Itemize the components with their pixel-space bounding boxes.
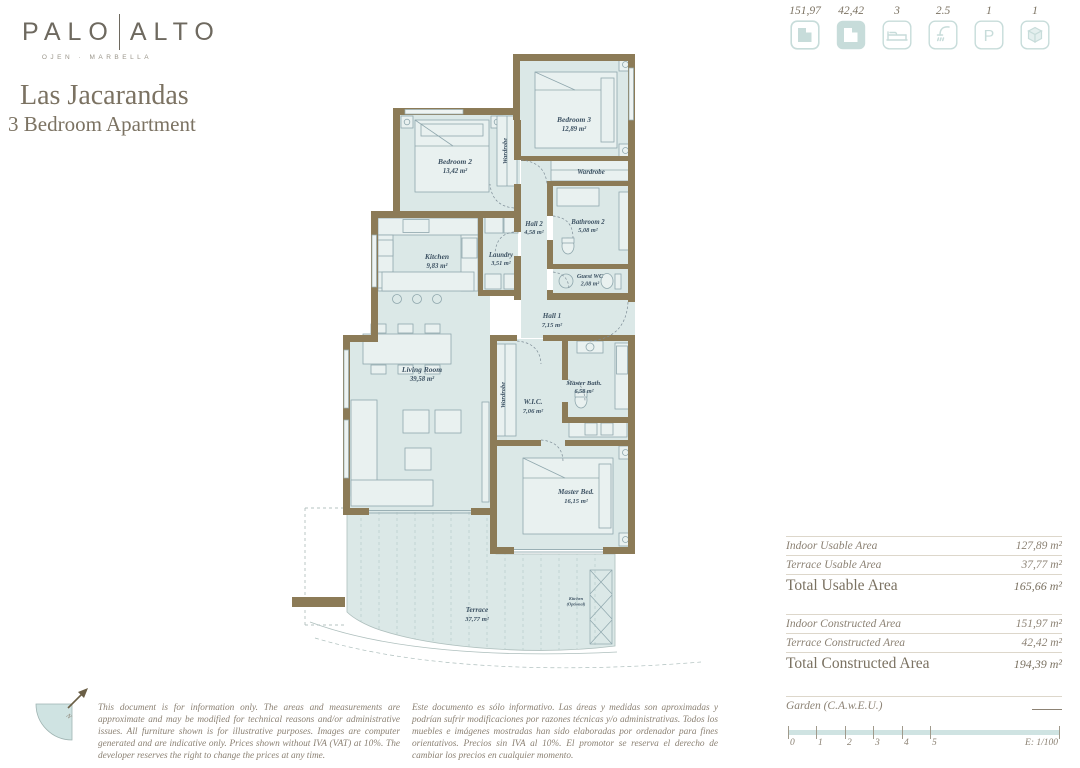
svg-text:4,58 m²: 4,58 m²	[523, 229, 543, 236]
floorplan-page: PALO ALTO OJEN · MARBELLA Las Jacarandas…	[0, 0, 1080, 768]
brand-name-left: PALO	[22, 18, 115, 47]
room-label-wardrobe-bedroom3: Wardrobe	[577, 169, 604, 176]
svg-text:39,58 m²: 39,58 m²	[409, 376, 435, 383]
scale-tick	[788, 726, 789, 739]
svg-text:W.I.C.: W.I.C.	[524, 398, 543, 406]
usable-area-group: Indoor Usable Area 127,89 m² Terrace Usa…	[786, 536, 1062, 598]
row-label: Total Constructed Area	[786, 655, 930, 673]
constructed-area-group: Indoor Constructed Area 151,97 m² Terrac…	[786, 614, 1062, 676]
bedroom2-bed	[401, 116, 503, 192]
svg-text:Laundry: Laundry	[488, 252, 514, 259]
scale-tick-label: 0	[790, 738, 795, 748]
svg-text:P: P	[984, 28, 995, 45]
area-summary-table: Indoor Usable Area 127,89 m² Terrace Usa…	[786, 536, 1062, 715]
disclaimer-spanish: Este documento es sólo informativo. Las …	[412, 702, 718, 762]
bedrooms-icon	[882, 20, 912, 50]
page-title: Las Jacarandas	[20, 80, 189, 112]
room-label-optional-kitchen: Kitchen (Optional)	[567, 596, 586, 607]
svg-text:2,08 m²: 2,08 m²	[580, 282, 600, 288]
row-value: 127,89 m²	[1016, 539, 1062, 553]
table-row: Terrace Constructed Area 42,42 m²	[786, 633, 1062, 652]
brand-tagline: OJEN · MARBELLA	[22, 54, 172, 61]
brand-name-right: ALTO	[130, 18, 221, 47]
table-row: Indoor Usable Area 127,89 m²	[786, 536, 1062, 555]
scale-tick	[816, 726, 817, 739]
row-value: 37,77 m²	[1021, 558, 1062, 572]
spec-value: 151,97	[789, 4, 821, 18]
row-value: 151,97 m²	[1016, 617, 1062, 631]
spec-value: 1	[1032, 4, 1038, 18]
svg-text:3,51 m²: 3,51 m²	[490, 260, 510, 267]
row-label: Total Usable Area	[786, 577, 898, 595]
scale-tick	[1059, 726, 1060, 739]
row-value: 194,39 m²	[1014, 655, 1062, 673]
parking-icon: P	[974, 20, 1004, 50]
spec-bedrooms: 3	[880, 4, 914, 50]
disclaimer-english: This document is for information only. T…	[98, 702, 400, 762]
scale-tick-label: 5	[932, 738, 937, 748]
row-label: Garden (C.A.w.E.U.)	[786, 699, 882, 713]
scale-tick-label: 2	[847, 738, 852, 748]
svg-text:16,15 m²: 16,15 m²	[564, 498, 589, 505]
scale-tick	[902, 726, 903, 739]
spec-value: 2.5	[936, 4, 950, 18]
compass-quadrant	[36, 704, 72, 740]
svg-text:12,89 m²: 12,89 m²	[562, 126, 587, 133]
storage-icon	[1020, 20, 1050, 50]
north-compass: N	[26, 680, 96, 752]
spec-storage: 1	[1018, 4, 1052, 50]
spec-value: 42,42	[838, 4, 864, 18]
table-row-total-usable: Total Usable Area 165,66 m²	[786, 574, 1062, 598]
svg-text:Bedroom 3: Bedroom 3	[556, 115, 591, 124]
svg-text:Master Bed.: Master Bed.	[557, 488, 594, 496]
room-label-wardrobe-wic: Wardrobe	[500, 382, 507, 408]
row-label: Terrace Usable Area	[786, 558, 881, 572]
spec-value: 1	[986, 4, 992, 18]
indoor-constructed-plan-icon	[790, 20, 820, 50]
svg-text:37,77 m²: 37,77 m²	[464, 616, 490, 623]
svg-text:Living Room: Living Room	[401, 365, 442, 374]
brand-logo: PALO ALTO OJEN · MARBELLA	[22, 14, 222, 61]
garden-blank-line	[1032, 699, 1062, 710]
logo-divider	[119, 14, 120, 50]
table-row: Terrace Usable Area 37,77 m²	[786, 555, 1062, 574]
svg-text:6,58 m²: 6,58 m²	[574, 388, 593, 395]
spec-indoor-constructed: 151,97	[788, 4, 822, 50]
svg-text:Hall 2: Hall 2	[524, 221, 543, 228]
scale-bar: 0 1 2 3 4 5 E: 1/100	[788, 724, 1060, 750]
row-value: 165,66 m²	[1014, 577, 1062, 595]
svg-text:(Optional): (Optional)	[567, 602, 586, 607]
svg-text:13,42 m²: 13,42 m²	[443, 168, 468, 175]
scale-tick-label: 3	[875, 738, 880, 748]
scale-ratio-label: E: 1/100	[1025, 738, 1058, 748]
garden-row: Garden (C.A.w.E.U.)	[786, 696, 1062, 715]
row-label: Terrace Constructed Area	[786, 636, 905, 650]
svg-text:9,83 m²: 9,83 m²	[427, 263, 449, 270]
terrace-constructed-plan-icon	[836, 20, 866, 50]
svg-text:5,08 m²: 5,08 m²	[578, 227, 597, 234]
table-row: Garden (C.A.w.E.U.)	[786, 696, 1062, 715]
row-value: 42,42 m²	[1021, 636, 1062, 650]
scale-tick	[930, 726, 931, 739]
svg-text:Kitchen: Kitchen	[424, 252, 449, 261]
room-label-wardrobe-bedroom2: Wardrobe	[502, 138, 509, 164]
svg-text:Master Bath.: Master Bath.	[565, 380, 602, 387]
svg-text:7,06 m²: 7,06 m²	[523, 408, 544, 415]
scale-tick-label: 4	[904, 738, 909, 748]
svg-text:Terrace: Terrace	[466, 606, 489, 614]
svg-text:Kitchen: Kitchen	[568, 596, 584, 601]
scale-tick	[873, 726, 874, 739]
table-row: Indoor Constructed Area 151,97 m²	[786, 614, 1062, 633]
row-label: Indoor Usable Area	[786, 539, 877, 553]
svg-text:Guest WC: Guest WC	[577, 273, 604, 280]
row-label: Indoor Constructed Area	[786, 617, 901, 631]
svg-text:Bathroom 2: Bathroom 2	[570, 219, 605, 226]
scale-bar-strip	[788, 730, 1060, 735]
bathrooms-icon	[928, 20, 958, 50]
scale-tick-label: 1	[818, 738, 823, 748]
spec-bathrooms: 2.5	[926, 4, 960, 50]
room-label-hall-2: Hall 2 4,58 m²	[523, 221, 543, 236]
svg-text:Bedroom 2: Bedroom 2	[437, 157, 472, 166]
spec-parking: 1 P	[972, 4, 1006, 50]
spec-summary: 151,97 42,42 3	[788, 4, 1052, 50]
spec-value: 3	[894, 4, 900, 18]
spec-terrace-constructed: 42,42	[834, 4, 868, 50]
floor-plan: Bedroom 2 13,42 m² Bedroom 3 12,89 m² Wa…	[285, 50, 715, 695]
svg-text:7,15 m²: 7,15 m²	[542, 322, 563, 329]
table-row-total-constructed: Total Constructed Area 194,39 m²	[786, 652, 1062, 676]
page-subtitle: 3 Bedroom Apartment	[8, 112, 196, 137]
room-label-laundry: Laundry 3,51 m²	[488, 252, 514, 267]
svg-text:Hall 1: Hall 1	[542, 312, 562, 320]
scale-tick	[845, 726, 846, 739]
